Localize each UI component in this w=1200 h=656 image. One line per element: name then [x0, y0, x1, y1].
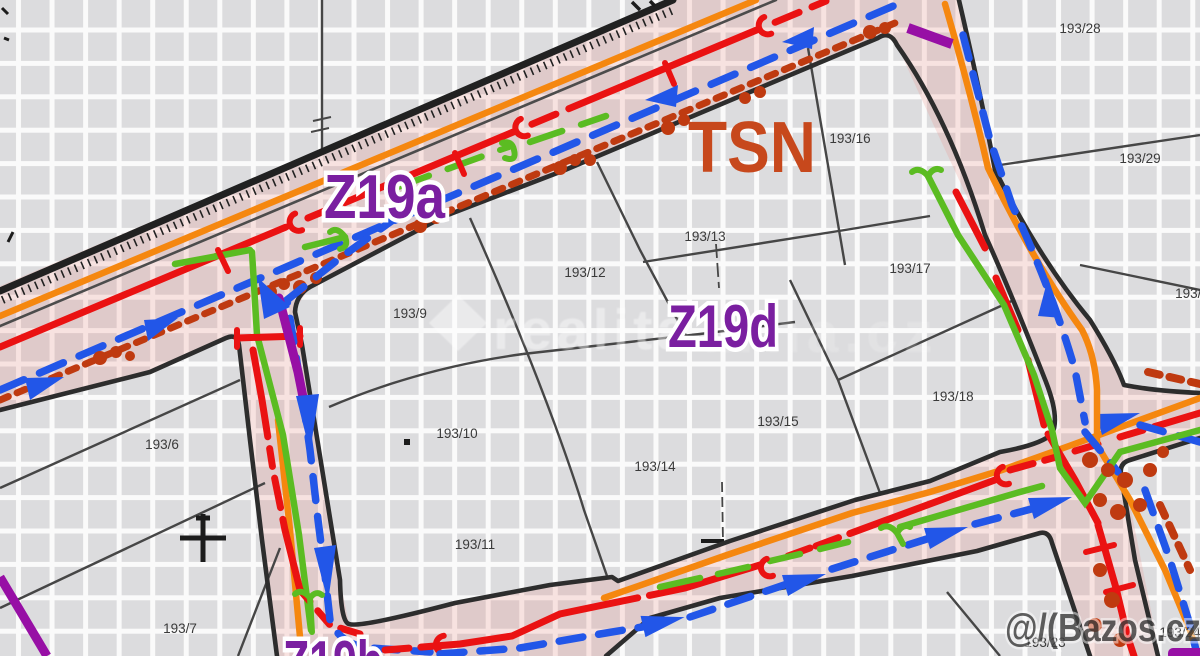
svg-text:193/11: 193/11 [455, 537, 495, 552]
svg-text:193/18: 193/18 [932, 389, 973, 404]
svg-text:193/6: 193/6 [145, 437, 179, 452]
svg-text:Z19a: Z19a [324, 163, 445, 232]
svg-text:193/17: 193/17 [889, 261, 930, 276]
svg-text:TSN: TSN [688, 108, 816, 188]
svg-text:realitá: realitá [493, 298, 693, 362]
svg-text:193/16: 193/16 [829, 131, 870, 146]
svg-text:193/14: 193/14 [634, 459, 676, 474]
svg-text:193/15: 193/15 [757, 414, 798, 429]
svg-text:193/12: 193/12 [564, 265, 605, 280]
svg-text:Z19d: Z19d [668, 293, 778, 360]
svg-text:@/(Bazos.cz: @/(Bazos.cz [1005, 607, 1200, 650]
svg-text:Z19b: Z19b [283, 629, 383, 656]
svg-text:193/29: 193/29 [1119, 151, 1160, 166]
svg-text:193/10: 193/10 [436, 426, 477, 441]
svg-text:193/13: 193/13 [684, 229, 725, 244]
svg-text:193/28: 193/28 [1059, 21, 1100, 36]
svg-text:193/7: 193/7 [163, 621, 197, 636]
svg-text:193/9: 193/9 [393, 306, 427, 321]
svg-text:193/1: 193/1 [1175, 286, 1200, 301]
